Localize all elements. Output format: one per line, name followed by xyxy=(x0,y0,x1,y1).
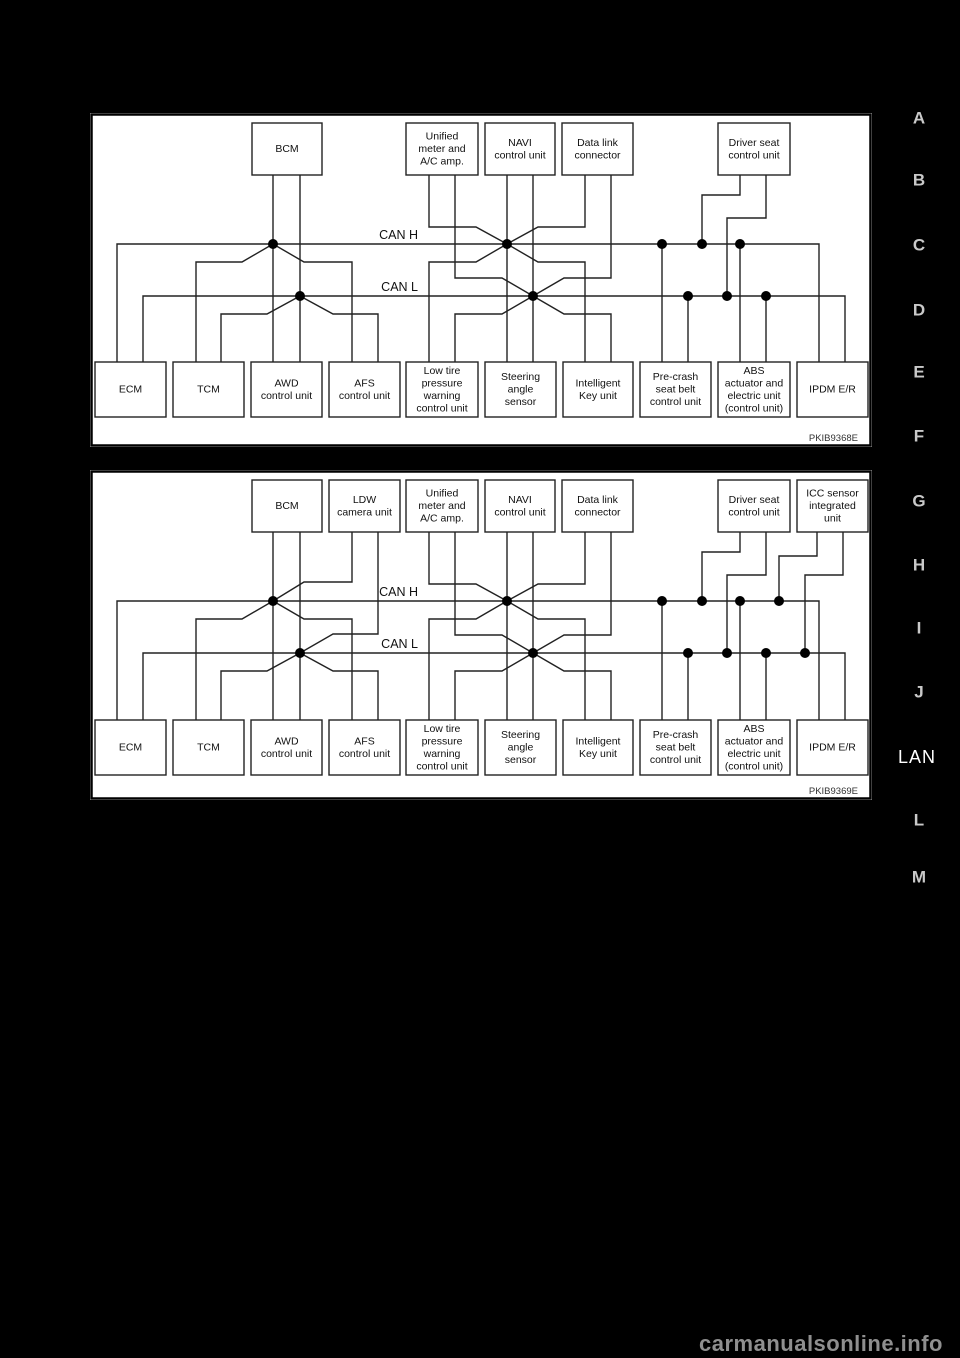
watermark: carmanualsonline.info xyxy=(699,1331,943,1357)
diagram-box-label: BCM xyxy=(275,500,298,512)
diagram-box-unified-meter-ac-amp: Unifiedmeter andA/C amp. xyxy=(406,123,478,175)
diagram-box-label: TCM xyxy=(197,384,220,396)
diagram-box-label: IntelligentKey unit xyxy=(576,735,621,760)
diagram-box-label: Pre-crashseat beltcontrol unit xyxy=(650,729,701,766)
can-diagram-svg-1: CAN HCAN LBCMUnifiedmeter andA/C amp.NAV… xyxy=(90,113,872,447)
diagram-box-intelligent-key-unit: IntelligentKey unit xyxy=(563,720,633,775)
diagram-box-label: ECM xyxy=(119,384,142,396)
junction-dot xyxy=(528,648,538,658)
diagram-box-label: IntelligentKey unit xyxy=(576,377,621,402)
diagram-box-label: Data linkconnector xyxy=(574,137,621,162)
diagram-box-afs-control-unit: AFScontrol unit xyxy=(329,720,400,775)
junction-dot xyxy=(722,648,732,658)
diagram-box-label: IPDM E/R xyxy=(809,742,856,754)
junction-dot xyxy=(774,596,784,606)
diagram-box-label: TCM xyxy=(197,742,220,754)
diagram-box-label: Data linkconnector xyxy=(574,494,621,519)
junction-dot xyxy=(502,596,512,606)
page-index-letter-i: I xyxy=(917,620,922,637)
diagram-box-bcm: BCM xyxy=(252,480,322,532)
diagram-box-pre-crash-seat-belt-control-unit: Pre-crashseat beltcontrol unit xyxy=(640,720,711,775)
diagram-box-data-link-connector: Data linkconnector xyxy=(562,480,633,532)
diagram-box-label: Pre-crashseat beltcontrol unit xyxy=(650,371,701,408)
page-index-letter-d: D xyxy=(913,302,925,319)
page-index-letter-g: G xyxy=(912,493,925,510)
junction-dot xyxy=(683,648,693,658)
diagram-box-awd-control-unit: AWDcontrol unit xyxy=(251,362,322,417)
diagram-box-ecm: ECM xyxy=(95,362,166,417)
diagram-box-navi-control-unit: NAVIcontrol unit xyxy=(485,480,555,532)
junction-dot xyxy=(722,291,732,301)
junction-dot xyxy=(761,648,771,658)
can-h-bus-label: CAN H xyxy=(379,228,418,242)
diagram-box-steering-angle-sensor: Steeringanglesensor xyxy=(485,720,556,775)
figure-code: PKIB9369E xyxy=(809,786,858,797)
junction-dot xyxy=(697,596,707,606)
diagram-box-label: Low tirepressurewarningcontrol unit xyxy=(416,723,467,773)
junction-dot xyxy=(735,596,745,606)
page-index-letter-l: L xyxy=(914,812,924,829)
can-system-diagram-2: CAN HCAN LBCMLDWcamera unitUnifiedmeter … xyxy=(90,470,872,800)
diagram-box-ipdm-er: IPDM E/R xyxy=(797,720,868,775)
page-index-letter-a: A xyxy=(913,110,925,127)
diagram-box-label: ECM xyxy=(119,742,142,754)
diagram-box-ipdm-er: IPDM E/R xyxy=(797,362,868,417)
junction-dot xyxy=(735,239,745,249)
diagram-box-intelligent-key-unit: IntelligentKey unit xyxy=(563,362,633,417)
page-section-label: LAN xyxy=(898,748,936,766)
page-index-letter-h: H xyxy=(913,557,925,574)
diagram-box-label: Low tirepressurewarningcontrol unit xyxy=(416,365,467,415)
diagram-box-pre-crash-seat-belt-control-unit: Pre-crashseat beltcontrol unit xyxy=(640,362,711,417)
diagram-box-steering-angle-sensor: Steeringanglesensor xyxy=(485,362,556,417)
diagram-box-tcm: TCM xyxy=(173,362,244,417)
diagram-box-awd-control-unit: AWDcontrol unit xyxy=(251,720,322,775)
junction-dot xyxy=(295,648,305,658)
diagram-box-label: IPDM E/R xyxy=(809,384,856,396)
junction-dot xyxy=(697,239,707,249)
page-index-letter-b: B xyxy=(913,172,925,189)
diagram-box-label: BCM xyxy=(275,143,298,155)
can-diagram-svg-2: CAN HCAN LBCMLDWcamera unitUnifiedmeter … xyxy=(90,470,872,800)
diagram-box-data-link-connector: Data linkconnector xyxy=(562,123,633,175)
junction-dot xyxy=(295,291,305,301)
diagram-box-bcm: BCM xyxy=(252,123,322,175)
junction-dot xyxy=(657,596,667,606)
diagram-box-icc-sensor-integrated-unit: ICC sensorintegratedunit xyxy=(797,480,868,532)
diagram-box-navi-control-unit: NAVIcontrol unit xyxy=(485,123,555,175)
diagram-box-ldw-camera-unit: LDWcamera unit xyxy=(329,480,400,532)
junction-dot xyxy=(800,648,810,658)
diagram-box-unified-meter-ac-amp: Unifiedmeter andA/C amp. xyxy=(406,480,478,532)
diagram-box-abs-actuator-electric-unit: ABSactuator andelectric unit(control uni… xyxy=(718,362,790,417)
page-index-letter-c: C xyxy=(913,237,925,254)
junction-dot xyxy=(683,291,693,301)
can-h-bus-label: CAN H xyxy=(379,585,418,599)
can-system-diagram-1: CAN HCAN LBCMUnifiedmeter andA/C amp.NAV… xyxy=(90,113,872,447)
diagram-box-low-tire-pressure-warning-control-unit: Low tirepressurewarningcontrol unit xyxy=(406,720,478,775)
page-index-letter-j: J xyxy=(914,684,923,701)
page-index-letter-e: E xyxy=(913,364,924,381)
page-index-letter-m: M xyxy=(912,869,926,886)
diagram-box-tcm: TCM xyxy=(173,720,244,775)
diagram-box-label: Driver seatcontrol unit xyxy=(728,137,779,162)
diagram-box-afs-control-unit: AFScontrol unit xyxy=(329,362,400,417)
junction-dot xyxy=(761,291,771,301)
can-l-bus-label: CAN L xyxy=(381,637,418,651)
diagram-box-low-tire-pressure-warning-control-unit: Low tirepressurewarningcontrol unit xyxy=(406,362,478,417)
junction-dot xyxy=(657,239,667,249)
junction-dot xyxy=(502,239,512,249)
junction-dot xyxy=(268,239,278,249)
page-index-letter-f: F xyxy=(914,428,924,445)
can-l-bus-label: CAN L xyxy=(381,280,418,294)
junction-dot xyxy=(268,596,278,606)
diagram-box-driver-seat-control-unit: Driver seatcontrol unit xyxy=(718,123,790,175)
diagram-box-ecm: ECM xyxy=(95,720,166,775)
figure-code: PKIB9368E xyxy=(809,433,858,444)
diagram-box-abs-actuator-electric-unit: ABSactuator andelectric unit(control uni… xyxy=(718,720,790,775)
diagram-box-driver-seat-control-unit: Driver seatcontrol unit xyxy=(718,480,790,532)
junction-dot xyxy=(528,291,538,301)
diagram-box-label: Driver seatcontrol unit xyxy=(728,494,779,519)
